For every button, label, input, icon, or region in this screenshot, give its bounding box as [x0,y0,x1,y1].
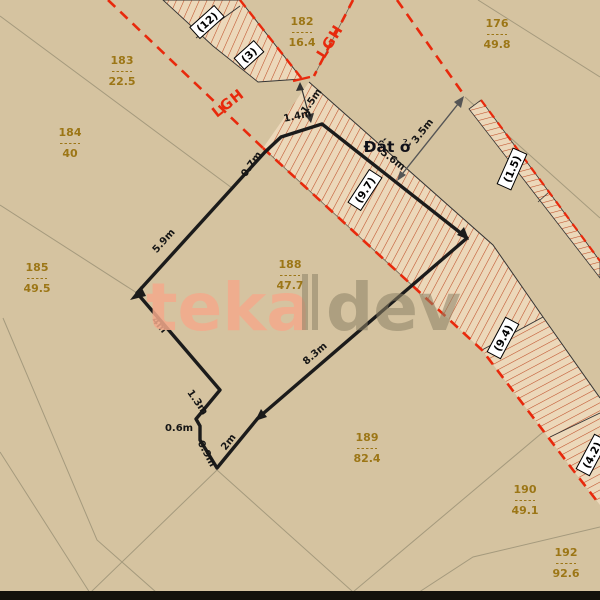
parcel-number: 182 [291,15,314,28]
parcel-area: 49.1 [511,504,538,517]
parcel-label: 17649.8 [483,17,510,51]
land-use-label: Đất ở [364,138,411,156]
parcel-area: 40 [62,147,78,160]
measurement-label: 0.6m [165,423,193,434]
parcel-number: 190 [514,483,537,496]
parcel-label: 19049.1 [511,483,538,517]
parcel-area: 22.5 [108,75,135,88]
parcel-number: 185 [26,261,49,274]
watermark-text-2: dev [326,269,461,346]
parcel-number: 176 [486,17,509,30]
parcel-label: 18549.5 [23,261,50,295]
parcel-area: 49.8 [483,38,510,51]
parcel-area: 82.4 [353,452,380,465]
watermark-bar [312,274,318,330]
watermark: tekadev [146,269,461,346]
parcel-number: 183 [111,54,134,67]
bottom-band [0,591,600,600]
parcel-number: 184 [59,126,82,139]
watermark-text-1: teka [146,269,311,346]
parcel-area: 16.4 [288,36,315,49]
parcel-label: 18982.4 [353,431,380,465]
watermark-bar [302,274,308,330]
cadastral-map[interactable]: 18322.518216.41844017649.818549.518847.7… [0,0,600,600]
parcel-label: 18322.5 [108,54,135,88]
parcel-number: 192 [555,546,578,559]
parcel-number: 189 [356,431,379,444]
parcel-label: 19292.6 [552,546,579,580]
parcel-area: 92.6 [552,567,579,580]
parcel-label: 18216.4 [288,15,315,49]
cadastral-map-viewport: 18322.518216.41844017649.818549.518847.7… [0,0,600,600]
parcel-area: 49.5 [23,282,50,295]
